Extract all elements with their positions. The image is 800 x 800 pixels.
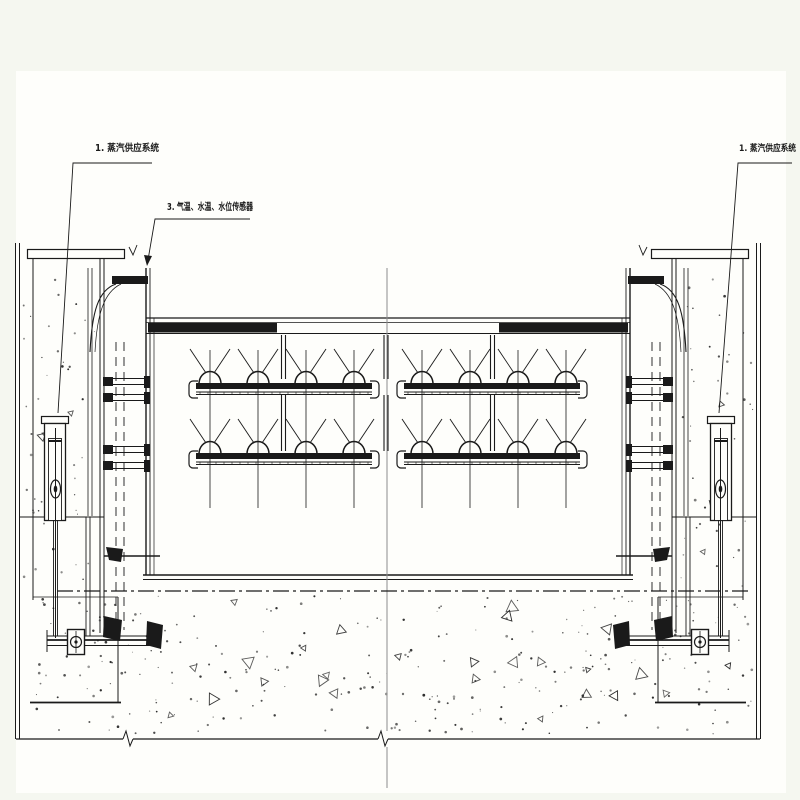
sensor-junction [112, 276, 148, 284]
label-steam-left: 1. 蒸汽供应系统 [95, 142, 159, 154]
pier-cap-beam [28, 250, 125, 259]
bolt-nut [144, 376, 150, 388]
tank-top-band [148, 323, 277, 333]
bolt-nut [144, 444, 150, 456]
anchor-fitting [103, 616, 122, 641]
label-sensors: 3. 气温、水温、水位传感器 [167, 201, 253, 213]
steam-cylinder-cap [42, 417, 69, 424]
engineering-section-drawing: 1. 蒸汽供应系统 3. 气温、水温、水位传感器 1. 蒸汽供应系统 [0, 0, 800, 800]
label-steam-right: 1. 蒸汽供应系统 [739, 142, 796, 154]
bolt-head [103, 377, 113, 386]
bolt-nut [144, 392, 150, 404]
bolt-head [103, 461, 113, 470]
bolt-head [103, 393, 113, 402]
drawing-paper [16, 71, 786, 793]
valve-center [74, 640, 77, 643]
anchor-fitting [146, 621, 163, 649]
bolt-nut [144, 460, 150, 472]
bolt-head [103, 445, 113, 454]
